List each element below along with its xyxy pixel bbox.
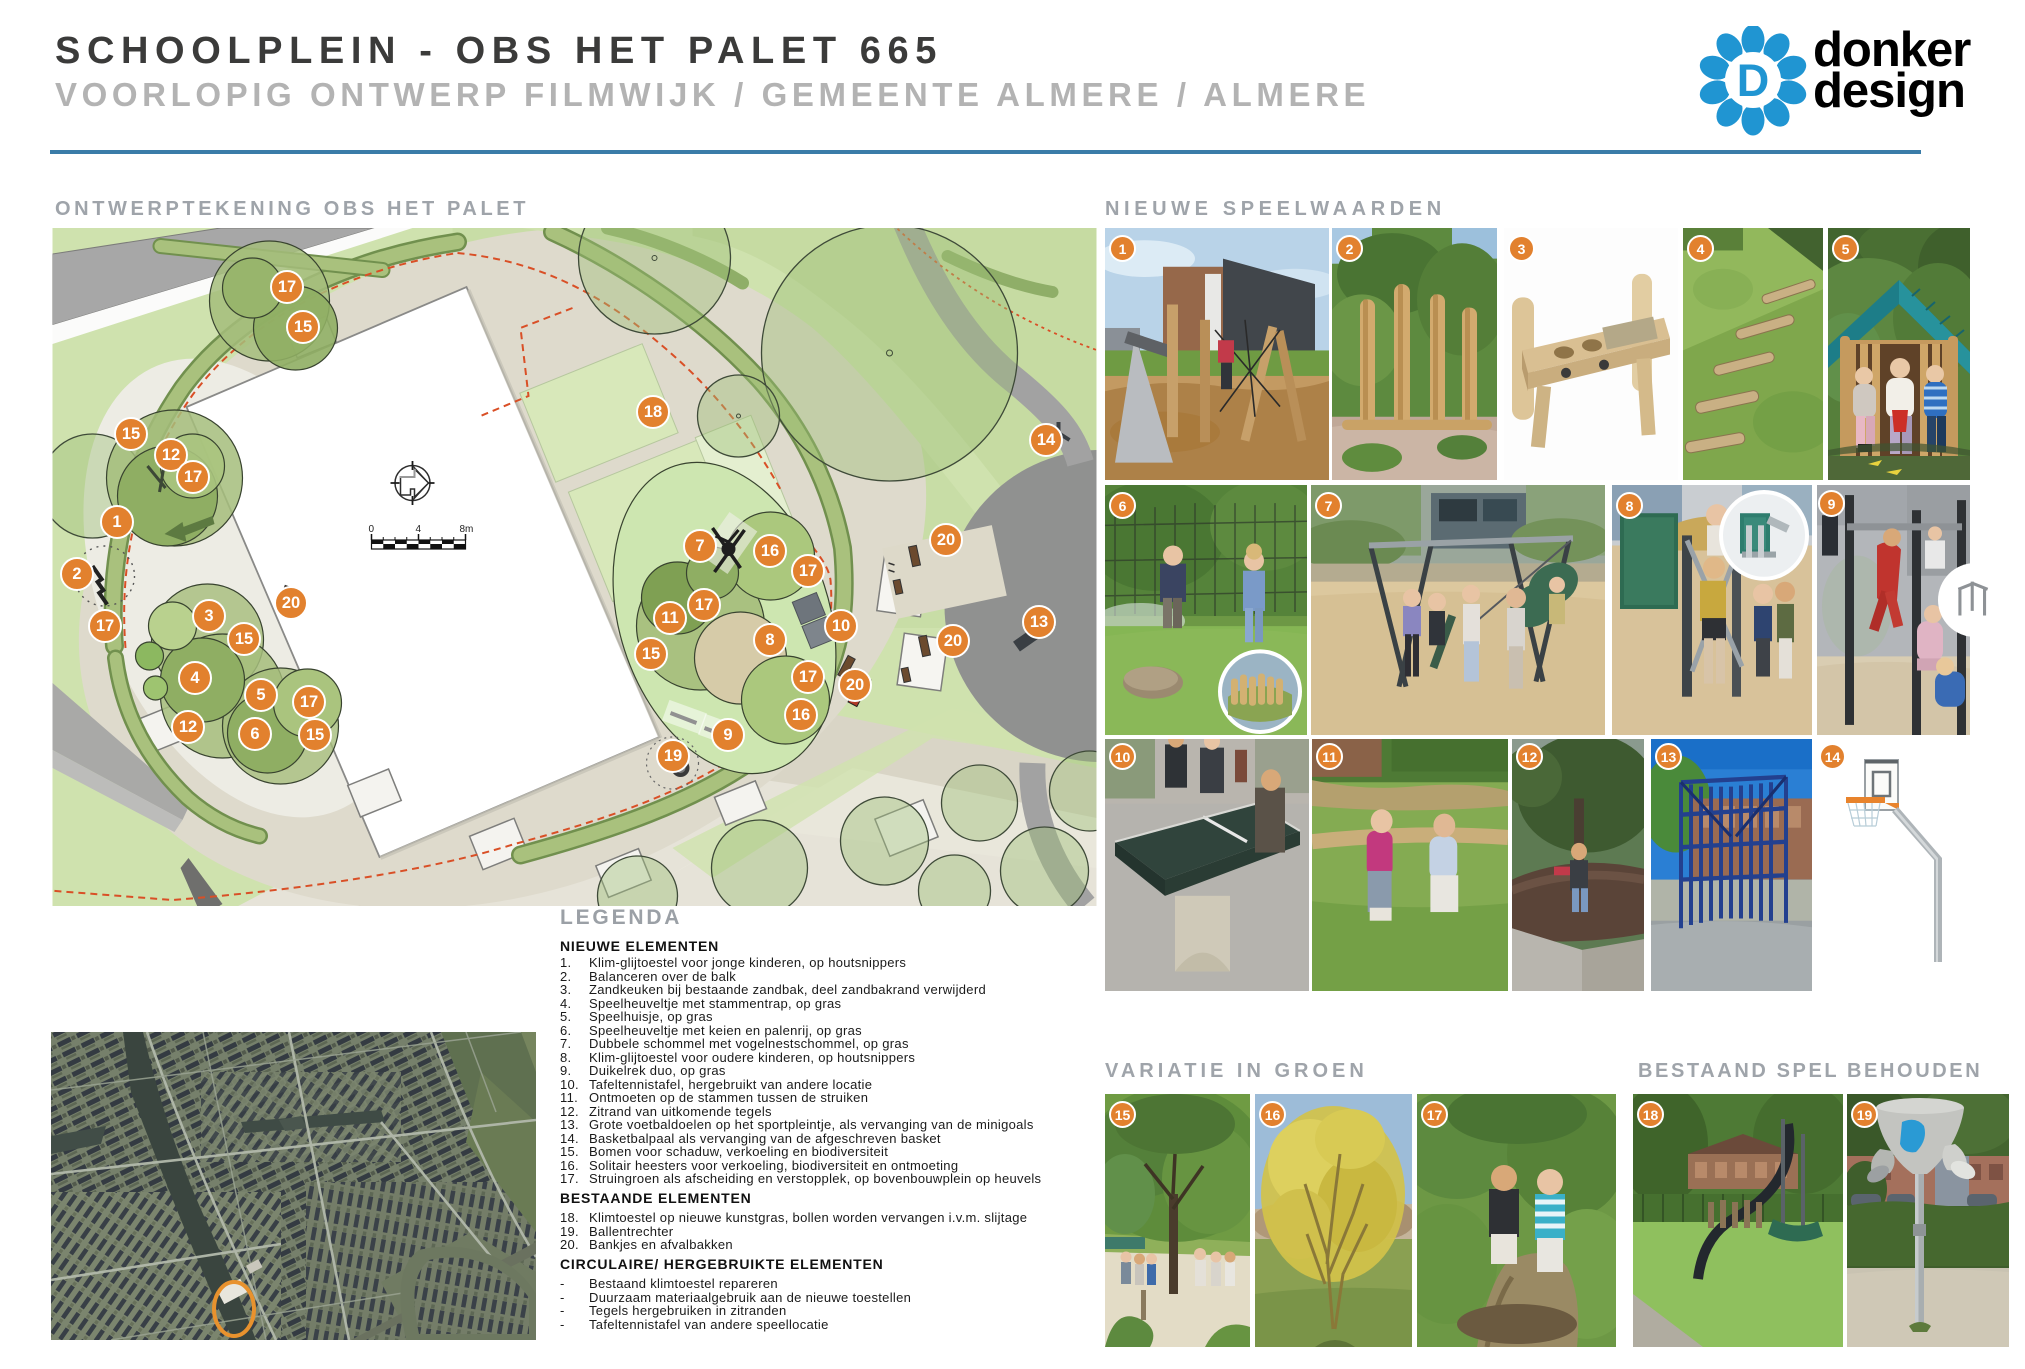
svg-text:0: 0 <box>369 524 375 535</box>
svg-text:4: 4 <box>416 524 422 535</box>
svg-text:D: D <box>1737 55 1770 106</box>
svg-text:8m: 8m <box>460 524 474 535</box>
